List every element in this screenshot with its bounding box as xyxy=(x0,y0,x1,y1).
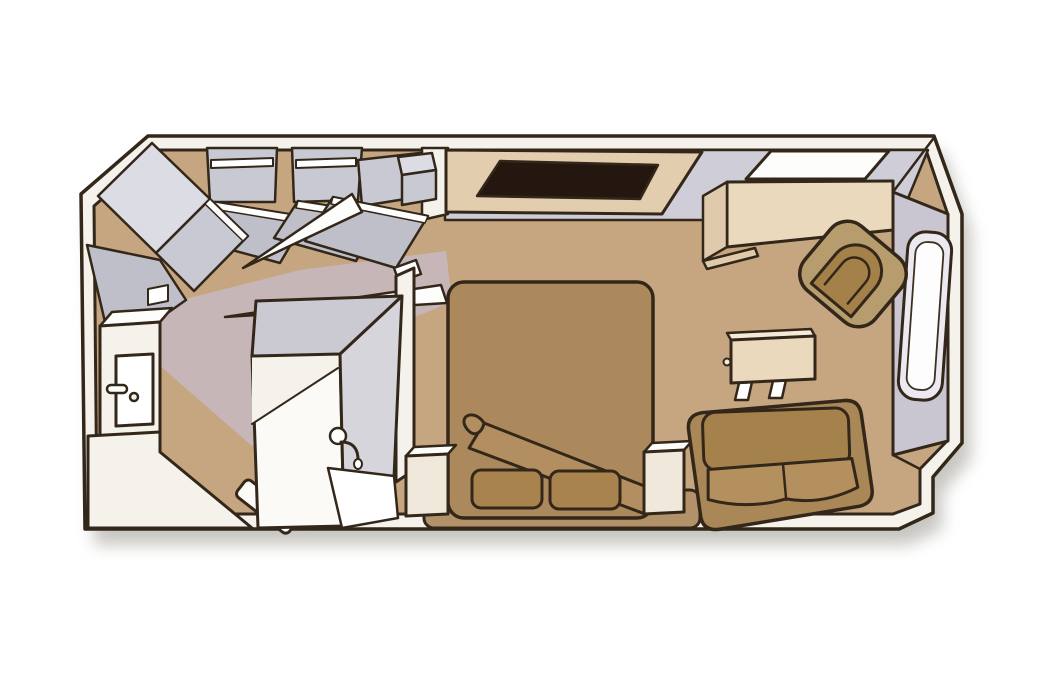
nightstand-left xyxy=(406,445,456,516)
pillow-right xyxy=(550,471,620,509)
door-handle xyxy=(107,385,127,393)
side-table-front xyxy=(731,336,815,383)
nightstand-right-front xyxy=(644,450,684,514)
side-table-knob xyxy=(724,359,731,366)
cabinet-box-front xyxy=(402,170,436,205)
pillow-left xyxy=(472,470,542,508)
side-table-leg-right xyxy=(769,380,786,398)
desk-inlay xyxy=(477,161,658,199)
vanity-desk xyxy=(446,150,702,214)
doorway-jamb xyxy=(148,285,168,305)
nightstand-right xyxy=(644,441,692,514)
door-knob xyxy=(130,393,138,401)
wardrobe-2-rod xyxy=(296,158,356,168)
counter-top xyxy=(746,151,889,179)
blanket-curl xyxy=(464,415,484,434)
nightstand-left-front xyxy=(406,454,448,516)
shower-head-tip xyxy=(354,459,362,469)
shower xyxy=(252,296,402,528)
floor-plan-drawing xyxy=(0,0,1044,696)
floor-plan-page xyxy=(0,0,1044,696)
wardrobe-1-interior xyxy=(207,148,277,202)
wardrobe-1-rod xyxy=(211,158,273,168)
counter-side xyxy=(703,182,727,261)
side-table-leg-left xyxy=(735,382,752,400)
